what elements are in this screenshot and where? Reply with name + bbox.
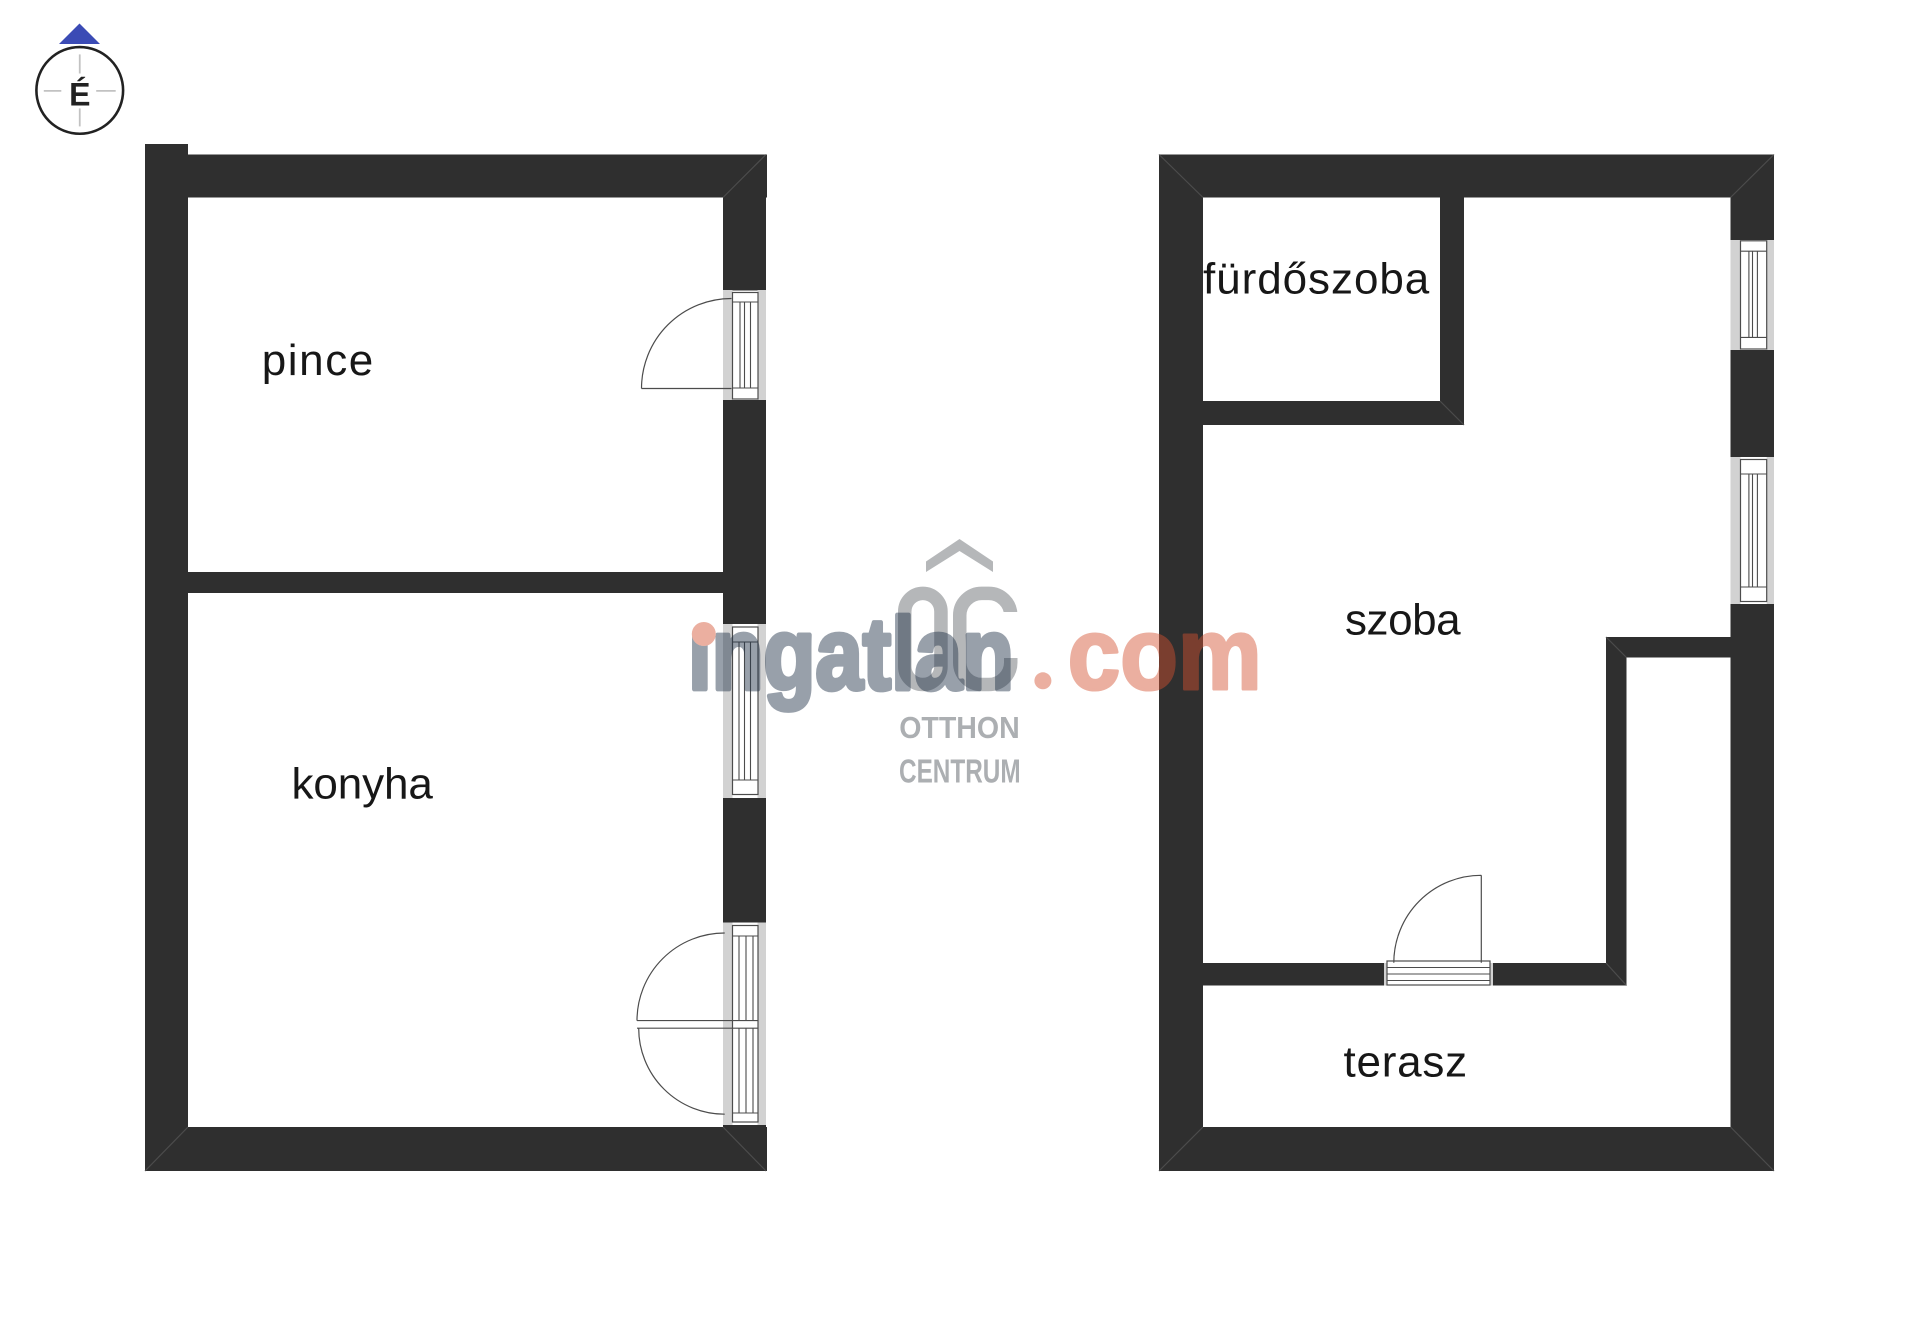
svg-text:szoba: szoba [1345, 595, 1461, 644]
svg-text:ıngatlan: ıngatlan [688, 597, 1014, 711]
svg-text:fürdőszoba: fürdőszoba [1203, 255, 1430, 304]
svg-text:com: com [1068, 597, 1262, 711]
svg-text:CENTRUM: CENTRUM [899, 752, 1021, 789]
svg-text:pince: pince [262, 336, 375, 385]
svg-text:É: É [69, 77, 90, 113]
svg-text:OTTHON: OTTHON [899, 710, 1020, 745]
svg-text:terasz: terasz [1344, 1038, 1468, 1087]
svg-text:konyha: konyha [292, 759, 434, 808]
